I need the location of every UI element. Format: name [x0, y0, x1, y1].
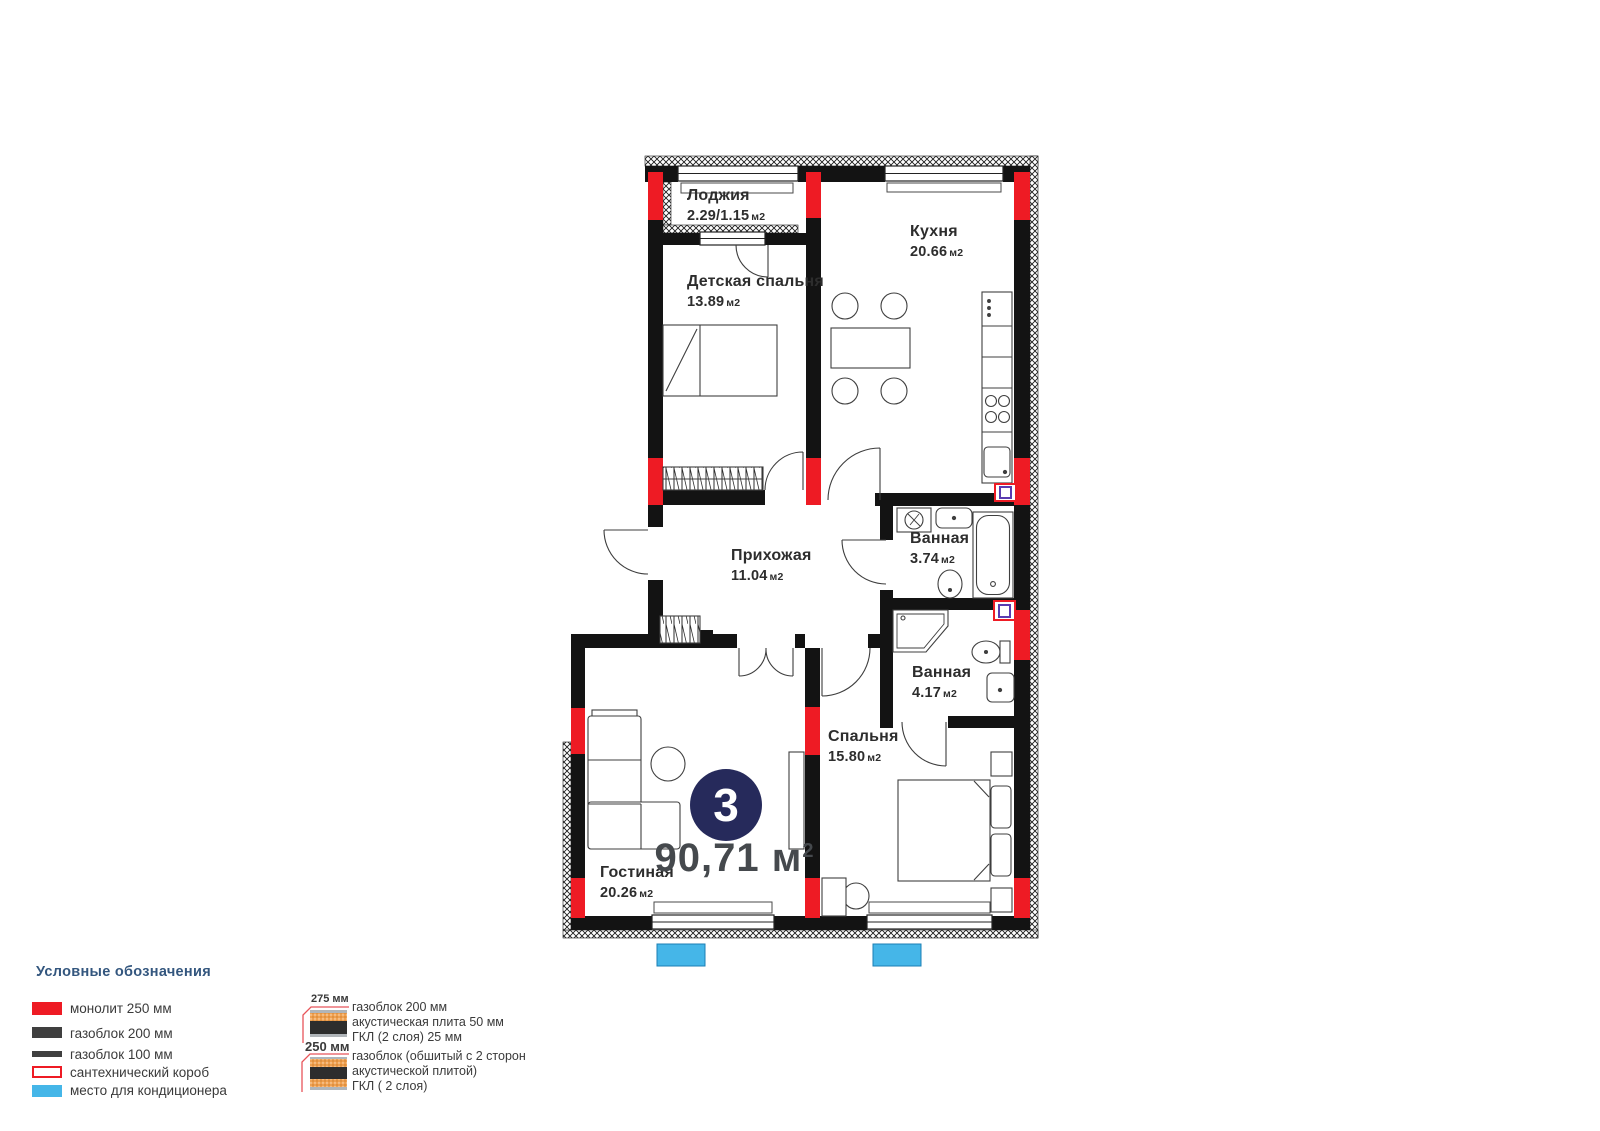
bedroom-dresser [822, 878, 846, 916]
room-label-kids-bedroom: Детская спальня 13.89м2 [687, 271, 824, 314]
legend-title: Условные обозначения [36, 964, 211, 980]
legend-swatch-gasblock100 [32, 1051, 62, 1057]
room-label-hallway: Прихожая 11.04м2 [731, 545, 812, 588]
room-area: 11.04 [731, 568, 768, 584]
room-name: Спальня [828, 726, 899, 747]
legend-swatch-ac-place [32, 1085, 62, 1097]
tv-stand [789, 752, 804, 849]
kitchen-door [828, 448, 880, 500]
french-doors [739, 648, 793, 676]
room-label-bedroom: Спальня 15.80м2 [828, 726, 899, 769]
kitchen-dining-set [831, 293, 910, 404]
coffee-table [651, 747, 685, 781]
room-area: 2.29/1.15 [687, 208, 749, 224]
room-area-unit: м2 [867, 752, 881, 764]
shower [893, 610, 948, 652]
wall-type-250-description: газоблок (обшитый с 2 сторон акустическо… [352, 1049, 526, 1095]
room-area: 4.17 [912, 685, 941, 701]
room-label-loggia: Лоджия 2.29/1.15м2 [687, 185, 765, 228]
bathroom2-sink-drain [998, 688, 1001, 691]
wall-type-275-dimension: 275 мм [311, 993, 349, 1005]
legend-item-ac-place: место для кондиционера [70, 1083, 227, 1098]
nightstand-top [991, 752, 1012, 776]
kids-room-door [765, 452, 803, 490]
room-area-unit: м2 [941, 554, 955, 566]
legend-item-gasblock-200: газоблок 200 мм [70, 1026, 173, 1041]
total-area-unit: м [772, 836, 803, 880]
bathtub [973, 512, 1013, 598]
wall-type-275-description: газоблок 200 мм акустическая плита 50 мм… [352, 1000, 504, 1046]
room-name: Ванная [910, 528, 969, 549]
room-name: Лоджия [687, 185, 765, 206]
bedroom-door [822, 648, 870, 696]
room-name: Прихожая [731, 545, 812, 566]
wall-type-sample-275 [303, 1007, 349, 1043]
wall-type-sample-250 [302, 1054, 349, 1092]
total-area: 90,71 м2 [628, 836, 840, 881]
wall-type-250-dimension: 250 мм [305, 1039, 350, 1054]
bathroom2-sink [987, 673, 1014, 702]
room-area-unit: м2 [949, 247, 963, 259]
bathroom1-door [842, 540, 886, 584]
entrance-door [604, 530, 648, 574]
room-area: 15.80 [828, 749, 865, 765]
legend-item-monolith: монолит 250 мм [70, 1001, 172, 1016]
room-area-unit: м2 [751, 211, 765, 223]
total-area-superscript: 2 [802, 840, 813, 862]
legend-swatch-monolith [32, 1002, 62, 1015]
room-label-kitchen: Кухня 20.66м2 [910, 221, 963, 264]
room-area: 3.74 [910, 551, 939, 567]
bedroom-stool [843, 883, 869, 909]
room-area-unit: м2 [943, 688, 957, 700]
hallway-wardrobe [660, 616, 700, 643]
room-count-number: 3 [713, 778, 739, 832]
legend-swatch-gasblock200 [32, 1027, 62, 1038]
double-bed [898, 780, 1011, 881]
kids-bed [663, 325, 777, 396]
nightstand-bottom [991, 888, 1012, 912]
legend-item-sanitary-box: сантехнический короб [70, 1065, 209, 1080]
bathroom2-door [902, 722, 946, 766]
room-area-unit: м2 [639, 888, 653, 900]
room-label-bathroom-1: Ванная 3.74м2 [910, 528, 969, 571]
bathroom1-toilet [938, 570, 962, 598]
room-area: 13.89 [687, 294, 724, 310]
room-label-bathroom-2: Ванная 4.17м2 [912, 662, 971, 705]
kitchen-counter [982, 292, 1012, 483]
bathroom1-sink-drain [952, 516, 955, 519]
room-name: Детская спальня [687, 271, 824, 292]
room-area: 20.66 [910, 244, 947, 260]
bathroom2-toilet [972, 641, 1010, 663]
room-name: Кухня [910, 221, 963, 242]
floor-plan-page: { "colors": { "monolith_red": "#ee1b24",… [0, 0, 1600, 1131]
room-name: Ванная [912, 662, 971, 683]
room-count-badge: 3 [690, 769, 762, 841]
room-area-unit: м2 [726, 297, 740, 309]
total-area-value: 90,71 [655, 836, 760, 880]
ac-places [657, 944, 921, 966]
room-area-unit: м2 [770, 571, 784, 583]
room-area: 20.26 [600, 885, 637, 901]
legend-swatch-sanitary-box [33, 1067, 61, 1077]
legend-item-gasblock-100: газоблок 100 мм [70, 1047, 173, 1062]
